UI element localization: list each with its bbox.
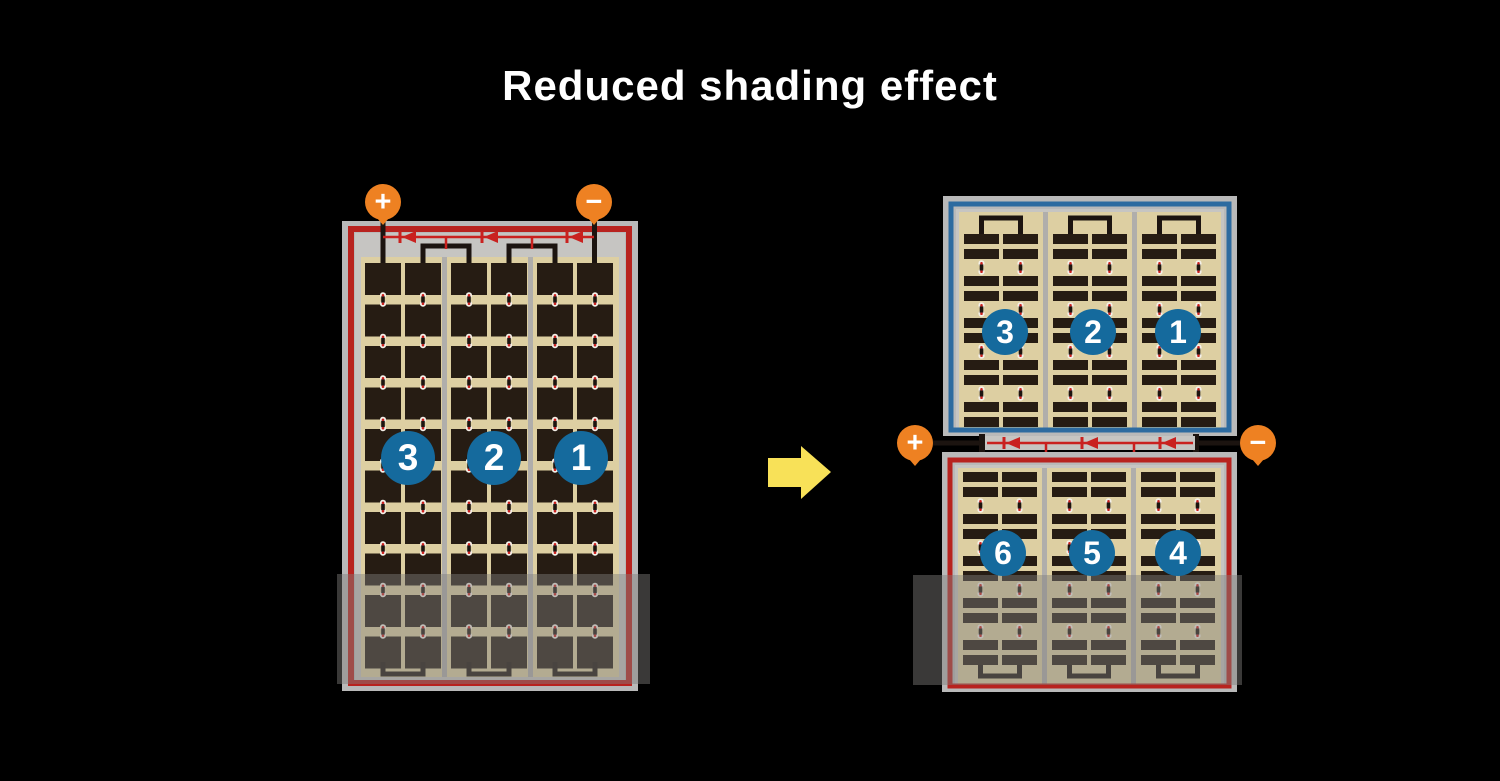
left-plus-terminal-icon: +	[365, 184, 401, 220]
left-minus-terminal-icon: −	[576, 184, 612, 220]
shading-overlay-left	[337, 574, 650, 684]
string-number-badge: 3	[381, 431, 435, 485]
string-number-badge: 2	[467, 431, 521, 485]
right-minus-terminal-icon: −	[1240, 425, 1276, 461]
diagram-stage: Reduced shading effect + − + − 3 2 1 3 2…	[0, 0, 1500, 781]
junction-bypass-diodes	[915, 434, 1258, 452]
string-number-badge: 4	[1155, 530, 1201, 576]
transform-arrow-icon	[768, 446, 831, 499]
string-number-badge: 5	[1069, 530, 1115, 576]
string-number-badge: 2	[1070, 309, 1116, 355]
string-number-badge: 1	[1155, 309, 1201, 355]
right-plus-terminal-icon: +	[897, 425, 933, 461]
string-number-badge: 1	[554, 431, 608, 485]
string-number-badge: 3	[982, 309, 1028, 355]
string-number-badge: 6	[980, 530, 1026, 576]
diagram-canvas	[0, 0, 1500, 781]
shading-overlay-right	[913, 575, 1242, 685]
